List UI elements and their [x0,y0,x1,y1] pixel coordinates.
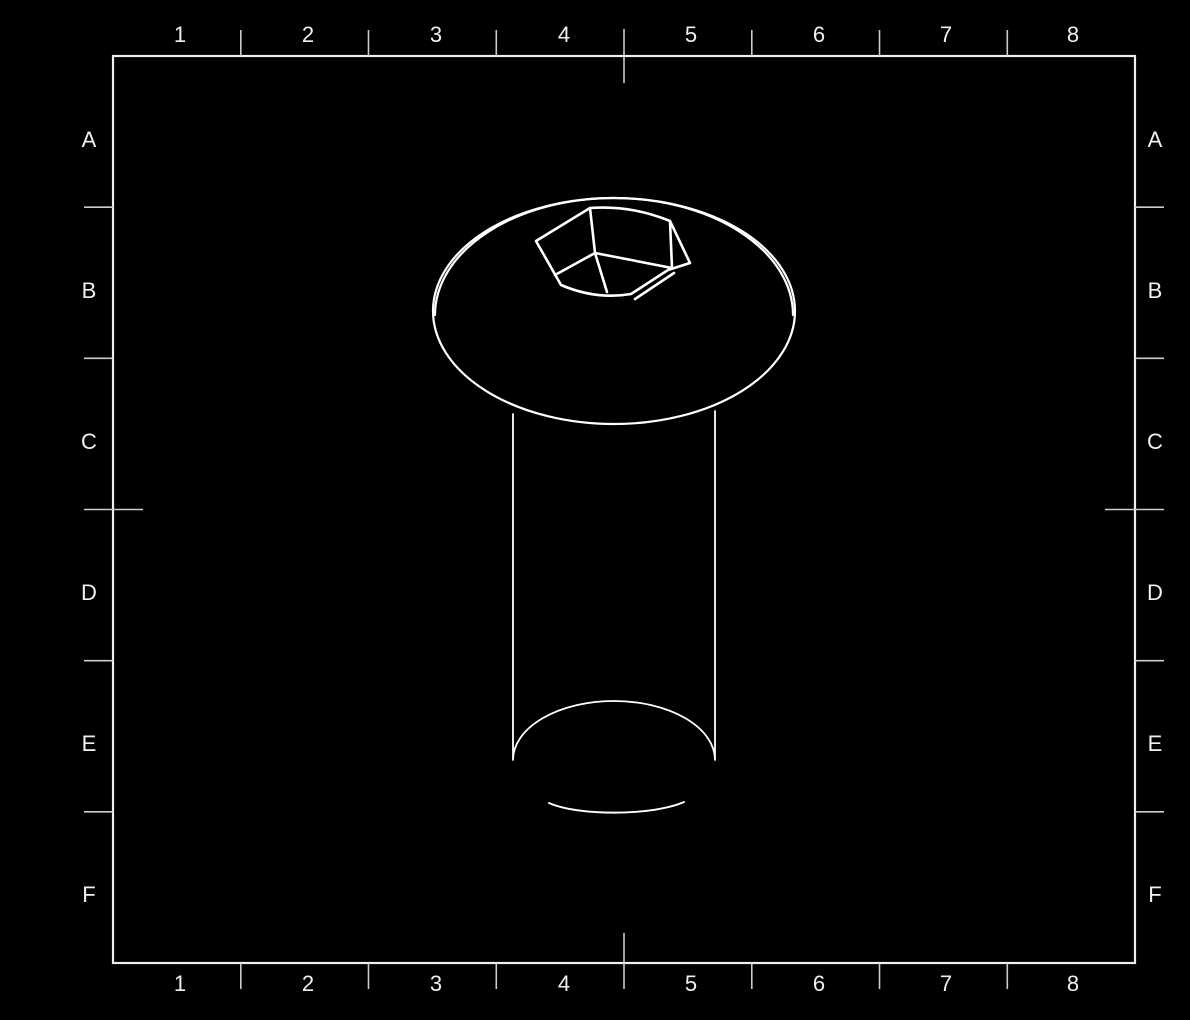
zone-column-label-top-3: 3 [430,24,442,46]
zone-column-label-bottom-1: 1 [174,973,186,995]
zone-row-label-right-f: F [1148,884,1161,906]
zone-row-label-left-d: D [81,582,97,604]
hex-socket-rim [536,208,690,296]
zone-row-label-left-b: B [82,280,97,302]
zone-column-label-top-2: 2 [302,24,314,46]
zone-row-label-right-b: B [1148,280,1163,302]
hex-socket-bottom-edge-front [595,253,607,292]
hex-socket-bottom-edge-back [595,253,672,268]
zone-column-label-top-5: 5 [685,24,697,46]
hex-socket-wall-edge-right [670,221,672,268]
zone-column-label-top-4: 4 [558,24,570,46]
zone-row-label-right-d: D [1147,582,1163,604]
zone-column-label-bottom-3: 3 [430,973,442,995]
zone-column-label-top-8: 8 [1067,24,1079,46]
cad-drawing-sheet: 1 2 3 4 5 6 7 8 1 2 3 4 5 6 7 8 A B C D … [0,0,1190,1020]
sheet-graphics [0,0,1190,1020]
sheet-border-frame [113,56,1135,963]
zone-column-label-bottom-8: 8 [1067,973,1079,995]
zone-column-label-top-7: 7 [940,24,952,46]
zone-column-label-top-6: 6 [813,24,825,46]
border-rect [113,56,1135,963]
screw-drawing[interactable] [433,198,795,813]
zone-column-label-bottom-7: 7 [940,973,952,995]
zone-row-label-left-e: E [82,733,97,755]
screw-shank-outline [513,411,715,760]
zone-row-label-right-e: E [1148,733,1163,755]
zone-row-label-right-c: C [1147,431,1163,453]
zone-column-label-top-1: 1 [174,24,186,46]
zone-row-label-right-a: A [1148,129,1163,151]
zone-column-label-bottom-6: 6 [813,973,825,995]
screw-tip-inner-arc [549,802,684,813]
zone-row-label-left-f: F [82,884,95,906]
hex-socket-edge-double-line [635,273,674,299]
hex-socket-bottom-edge-left [555,253,595,275]
zone-ticks [84,29,1164,989]
zone-column-label-bottom-5: 5 [685,973,697,995]
zone-row-label-left-a: A [82,129,97,151]
hex-socket-wall-edge-left [590,208,595,253]
zone-column-label-bottom-4: 4 [558,973,570,995]
zone-column-label-bottom-2: 2 [302,973,314,995]
zone-row-label-left-c: C [81,431,97,453]
